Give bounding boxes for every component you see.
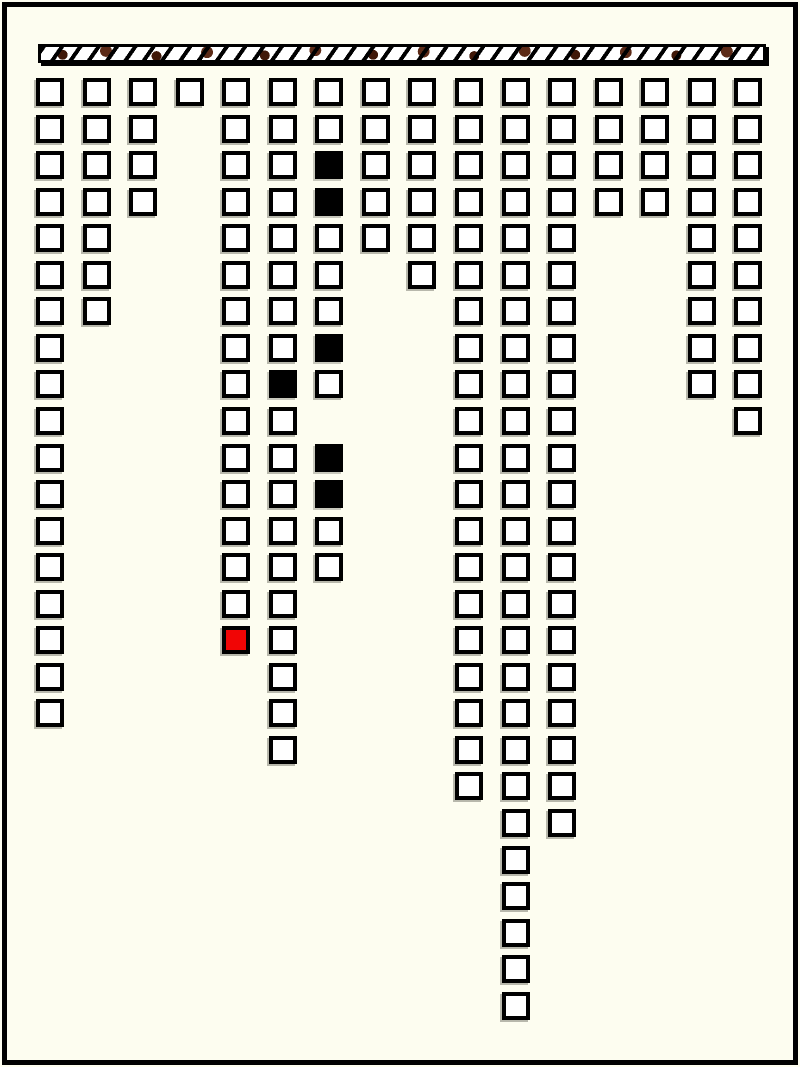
grid-square[interactable]	[269, 736, 297, 764]
grid-square[interactable]	[36, 517, 64, 545]
grid-square[interactable]	[362, 115, 390, 143]
grid-square[interactable]	[502, 590, 530, 618]
grid-square[interactable]	[222, 297, 250, 325]
grid-square[interactable]	[83, 261, 111, 289]
grid-square[interactable]	[36, 78, 64, 106]
grid-square[interactable]	[362, 188, 390, 216]
grid-square[interactable]	[641, 188, 669, 216]
grid-square[interactable]	[222, 224, 250, 252]
grid-square[interactable]	[734, 115, 762, 143]
grid-square[interactable]	[502, 955, 530, 983]
grid-square[interactable]	[36, 151, 64, 179]
grid-square[interactable]	[502, 553, 530, 581]
grid-square[interactable]	[548, 78, 576, 106]
grid-square[interactable]	[548, 590, 576, 618]
grid-square[interactable]	[641, 78, 669, 106]
grid-square[interactable]	[36, 115, 64, 143]
grid-square[interactable]	[83, 188, 111, 216]
grid-square[interactable]	[734, 370, 762, 398]
grid-square[interactable]	[408, 224, 436, 252]
grid-square[interactable]	[222, 334, 250, 362]
grid-square[interactable]	[688, 224, 716, 252]
grid-square[interactable]	[269, 115, 297, 143]
grid-square[interactable]	[502, 809, 530, 837]
grid-square[interactable]	[455, 334, 483, 362]
grid-square[interactable]	[734, 224, 762, 252]
grid-square[interactable]	[36, 261, 64, 289]
grid-square[interactable]	[222, 480, 250, 508]
grid-square[interactable]	[222, 115, 250, 143]
grid-square[interactable]	[502, 882, 530, 910]
grid-square[interactable]	[129, 78, 157, 106]
grid-square[interactable]	[734, 151, 762, 179]
grid-square[interactable]	[269, 553, 297, 581]
grid-square[interactable]	[502, 334, 530, 362]
grid-square[interactable]	[455, 261, 483, 289]
grid-square[interactable]	[315, 78, 343, 106]
grid-square[interactable]	[502, 115, 530, 143]
grid-square[interactable]	[502, 699, 530, 727]
grid-square[interactable]	[36, 334, 64, 362]
grid-square[interactable]	[455, 370, 483, 398]
grid-square[interactable]	[269, 590, 297, 618]
grid-square[interactable]	[688, 78, 716, 106]
grid-square[interactable]	[548, 736, 576, 764]
grid-square[interactable]	[269, 663, 297, 691]
grid-square[interactable]	[269, 261, 297, 289]
grid-square[interactable]	[595, 151, 623, 179]
grid-square[interactable]	[455, 115, 483, 143]
grid-square[interactable]	[688, 370, 716, 398]
grid-square[interactable]	[455, 188, 483, 216]
grid-square[interactable]	[548, 480, 576, 508]
grid-square[interactable]	[269, 151, 297, 179]
grid-square[interactable]	[269, 334, 297, 362]
grid-square[interactable]	[688, 261, 716, 289]
grid-square[interactable]	[548, 809, 576, 837]
game-board	[7, 7, 793, 1060]
grid-square[interactable]	[269, 626, 297, 654]
grid-square[interactable]	[734, 78, 762, 106]
grid-square[interactable]	[269, 480, 297, 508]
grid-square[interactable]	[315, 517, 343, 545]
grid-square[interactable]	[315, 553, 343, 581]
grid-square-black[interactable]	[269, 370, 297, 398]
grid-square[interactable]	[548, 626, 576, 654]
grid-square[interactable]	[502, 370, 530, 398]
grid-square-black[interactable]	[315, 151, 343, 179]
grid-square[interactable]	[548, 663, 576, 691]
grid-square[interactable]	[502, 772, 530, 800]
grid-square[interactable]	[548, 772, 576, 800]
grid-square-black[interactable]	[315, 334, 343, 362]
grid-square[interactable]	[129, 188, 157, 216]
grid-square[interactable]	[129, 115, 157, 143]
grid-square[interactable]	[36, 553, 64, 581]
grid-square[interactable]	[83, 78, 111, 106]
grid-square[interactable]	[222, 517, 250, 545]
grid-square[interactable]	[688, 297, 716, 325]
grid-square[interactable]	[595, 115, 623, 143]
grid-square[interactable]	[222, 444, 250, 472]
grid-square[interactable]	[688, 151, 716, 179]
grid-square[interactable]	[595, 188, 623, 216]
grid-square[interactable]	[548, 224, 576, 252]
grid-square[interactable]	[222, 370, 250, 398]
grid-square[interactable]	[222, 590, 250, 618]
grid-square[interactable]	[362, 224, 390, 252]
grid-square[interactable]	[455, 736, 483, 764]
grid-square[interactable]	[734, 188, 762, 216]
grid-square[interactable]	[408, 78, 436, 106]
grid-square[interactable]	[362, 78, 390, 106]
grid-square[interactable]	[548, 370, 576, 398]
grid-square[interactable]	[222, 407, 250, 435]
grid-square[interactable]	[455, 517, 483, 545]
grid-square[interactable]	[269, 78, 297, 106]
grid-square[interactable]	[455, 444, 483, 472]
grid-square[interactable]	[548, 151, 576, 179]
grid-square[interactable]	[269, 517, 297, 545]
grid-square[interactable]	[36, 663, 64, 691]
grid-square[interactable]	[83, 224, 111, 252]
grid-square[interactable]	[502, 78, 530, 106]
grid-square[interactable]	[129, 151, 157, 179]
grid-square[interactable]	[408, 188, 436, 216]
grid-square[interactable]	[315, 297, 343, 325]
grid-square[interactable]	[502, 517, 530, 545]
grid-square[interactable]	[408, 261, 436, 289]
grid-square[interactable]	[548, 334, 576, 362]
grid-square[interactable]	[502, 992, 530, 1020]
grid-square[interactable]	[641, 151, 669, 179]
grid-square[interactable]	[548, 517, 576, 545]
grid-square[interactable]	[36, 407, 64, 435]
grid-square[interactable]	[36, 699, 64, 727]
grid-square[interactable]	[83, 151, 111, 179]
grid-square[interactable]	[502, 919, 530, 947]
grid-square[interactable]	[502, 736, 530, 764]
grid-square[interactable]	[502, 846, 530, 874]
grid-square[interactable]	[548, 261, 576, 289]
grid-square[interactable]	[269, 297, 297, 325]
grid-square[interactable]	[222, 78, 250, 106]
grid-square[interactable]	[83, 297, 111, 325]
grid-square[interactable]	[734, 261, 762, 289]
grid-square[interactable]	[455, 151, 483, 179]
grid-square[interactable]	[315, 370, 343, 398]
grid-square[interactable]	[688, 115, 716, 143]
grid-square[interactable]	[36, 224, 64, 252]
grid-square[interactable]	[455, 480, 483, 508]
grid-square[interactable]	[502, 626, 530, 654]
grid-square[interactable]	[548, 699, 576, 727]
grid-square[interactable]	[408, 115, 436, 143]
grid-square[interactable]	[222, 553, 250, 581]
grid-square[interactable]	[36, 297, 64, 325]
grid-square[interactable]	[36, 480, 64, 508]
grid-square[interactable]	[315, 224, 343, 252]
grid-square[interactable]	[502, 224, 530, 252]
grid-square[interactable]	[269, 224, 297, 252]
grid-square[interactable]	[36, 370, 64, 398]
game-window	[2, 2, 798, 1065]
grid-square[interactable]	[455, 590, 483, 618]
grid-square[interactable]	[455, 78, 483, 106]
grid-square[interactable]	[315, 261, 343, 289]
grid-square[interactable]	[548, 115, 576, 143]
grid-square[interactable]	[455, 699, 483, 727]
grid-square[interactable]	[36, 188, 64, 216]
grid-square[interactable]	[455, 626, 483, 654]
grid-square-black[interactable]	[315, 188, 343, 216]
grid-square[interactable]	[688, 188, 716, 216]
grid-square[interactable]	[269, 188, 297, 216]
grid-square[interactable]	[83, 115, 111, 143]
grid-square[interactable]	[455, 224, 483, 252]
grid-square[interactable]	[222, 261, 250, 289]
grid-square[interactable]	[688, 334, 716, 362]
grid-square[interactable]	[502, 188, 530, 216]
grid-square[interactable]	[502, 480, 530, 508]
grid-square[interactable]	[502, 444, 530, 472]
grid-square[interactable]	[362, 151, 390, 179]
grid-square[interactable]	[734, 297, 762, 325]
grid-square[interactable]	[176, 78, 204, 106]
grid-square[interactable]	[502, 261, 530, 289]
grid-square[interactable]	[455, 297, 483, 325]
grid-square-black[interactable]	[315, 480, 343, 508]
grid-square[interactable]	[222, 151, 250, 179]
grid-square[interactable]	[734, 334, 762, 362]
grid-square[interactable]	[548, 188, 576, 216]
grid-square[interactable]	[269, 444, 297, 472]
grid-square-black[interactable]	[315, 444, 343, 472]
grid-square[interactable]	[548, 407, 576, 435]
grid-square[interactable]	[408, 151, 436, 179]
grid-square[interactable]	[36, 626, 64, 654]
grid-square[interactable]	[269, 699, 297, 727]
grid-square[interactable]	[269, 407, 297, 435]
grid-square[interactable]	[36, 590, 64, 618]
grid-square[interactable]	[455, 407, 483, 435]
grid-square-red[interactable]	[222, 626, 250, 654]
grid-square[interactable]	[734, 407, 762, 435]
grid-square[interactable]	[641, 115, 669, 143]
grid-square[interactable]	[548, 553, 576, 581]
grid-square[interactable]	[455, 553, 483, 581]
grid-square[interactable]	[222, 188, 250, 216]
grid-square[interactable]	[502, 151, 530, 179]
grid-square[interactable]	[548, 297, 576, 325]
grid-square[interactable]	[548, 444, 576, 472]
grid-square[interactable]	[502, 297, 530, 325]
grid-square[interactable]	[315, 115, 343, 143]
grid-square[interactable]	[455, 663, 483, 691]
grid-square[interactable]	[595, 78, 623, 106]
grid-square[interactable]	[455, 772, 483, 800]
grid-square[interactable]	[502, 663, 530, 691]
grid-square[interactable]	[36, 444, 64, 472]
grid-square[interactable]	[502, 407, 530, 435]
